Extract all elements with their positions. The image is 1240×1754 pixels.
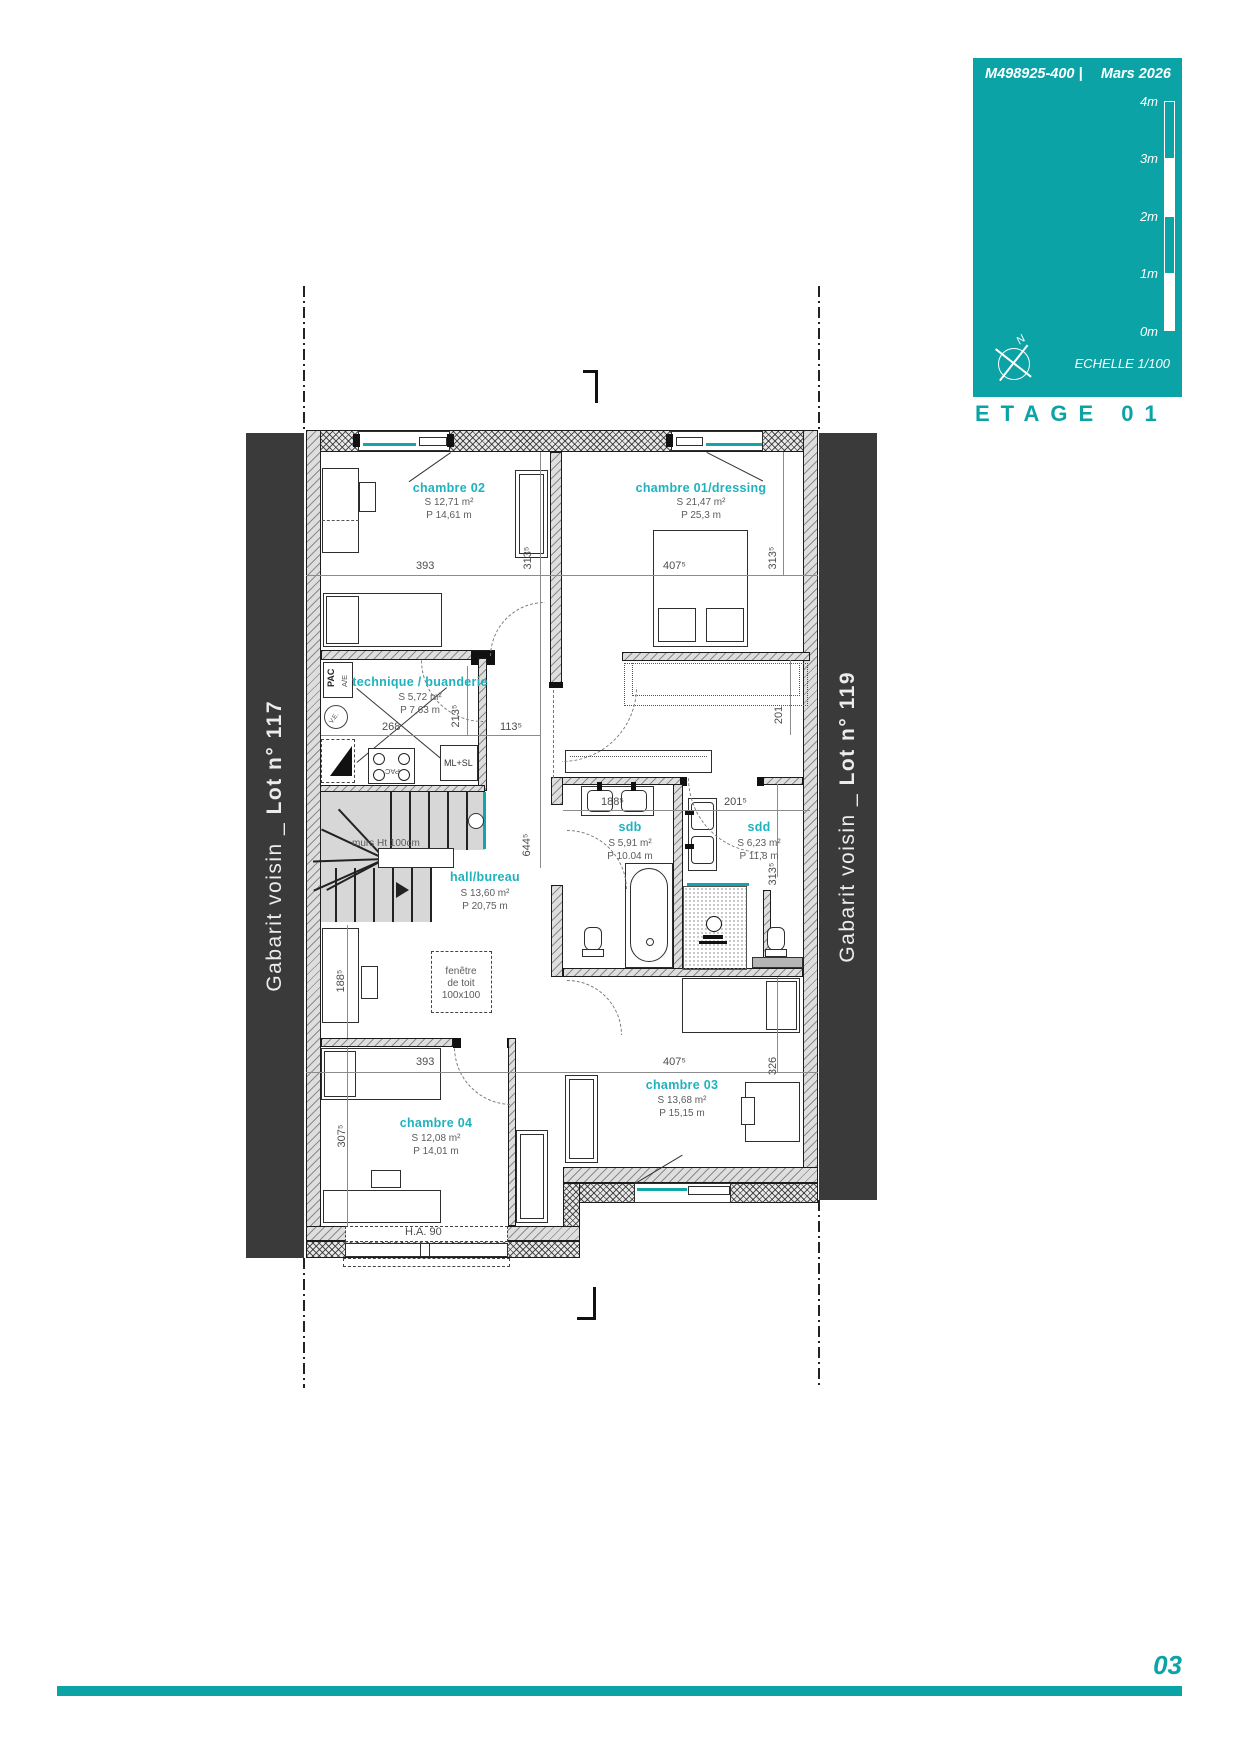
dimension-line xyxy=(306,575,818,576)
room-area-chambre03: S 13,68 m² xyxy=(602,1095,762,1106)
room-area-chambre02: S 12,71 m² xyxy=(369,497,529,508)
wall-exterior-left xyxy=(306,430,321,1258)
window-mullion xyxy=(420,1243,430,1257)
cabinet-symbol xyxy=(330,746,352,776)
appliance-foot xyxy=(373,769,385,781)
neighbor-strip-left: Gabarit voisin _ Lot n° 117 xyxy=(246,433,304,1258)
bathtub-drain xyxy=(646,938,654,946)
room-label-hall: hall/bureau xyxy=(390,870,580,884)
sdd-bench xyxy=(752,957,803,968)
side-table xyxy=(361,966,378,999)
washer-dryer-label: ML+SL xyxy=(444,758,473,768)
washer-dryer: ML+SL xyxy=(440,745,478,781)
pac-appliance: PAC xyxy=(368,748,415,784)
room-perimeter-chambre04: P 14,01 m xyxy=(356,1146,516,1157)
sheet-title: ETAGE 01 xyxy=(975,401,1168,427)
dim-268: 268 xyxy=(382,721,400,733)
room-label-chambre01: chambre 01/dressing xyxy=(606,481,796,495)
scale-tick-4m: 4m xyxy=(1128,94,1158,109)
roof-window-label: 100x100 xyxy=(431,990,491,1001)
wall-hall-sdb xyxy=(561,777,683,785)
door-arc-chambre04 xyxy=(454,1047,512,1105)
room-area-technique: S 5,72 m² xyxy=(340,692,500,703)
scale-tick-0m: 0m xyxy=(1128,324,1158,339)
toilet-base xyxy=(765,949,787,957)
door-arc-chambre01 xyxy=(562,687,637,762)
desk-chambre04 xyxy=(323,1190,441,1223)
shower-drain xyxy=(706,916,722,932)
scale-bar-segment xyxy=(1164,274,1175,332)
scale-label: ECHELLE 1/100 xyxy=(1050,356,1170,371)
scale-bar-segment xyxy=(1164,159,1175,217)
dim-313-sdd: 313⁵ xyxy=(767,863,779,886)
bathtub-inner xyxy=(630,868,668,962)
window-glazing xyxy=(363,443,416,446)
pillow xyxy=(658,608,696,642)
wall-exterior-right xyxy=(803,430,818,1183)
section-marker xyxy=(593,1287,596,1320)
window-pane xyxy=(419,437,447,446)
pillow xyxy=(766,981,797,1030)
ve-label: V.E. xyxy=(328,711,340,725)
room-area-sdd: S 6,23 m² xyxy=(679,838,839,849)
section-marker xyxy=(577,1317,596,1320)
dim-393-top: 393 xyxy=(416,560,434,572)
scale-tick-2m: 2m xyxy=(1128,209,1158,224)
room-label-chambre04: chambre 04 xyxy=(341,1116,531,1130)
window-jamb xyxy=(353,434,360,447)
window-leaf-open xyxy=(408,452,451,482)
dim-188-hall: 188⁵ xyxy=(335,970,347,993)
shower-fixture xyxy=(699,941,727,944)
neighbor-left-label: Gabarit voisin _ Lot n° 117 xyxy=(263,700,287,992)
shower-fixture xyxy=(703,935,723,939)
stair-wall-note: murs Ht 100cm xyxy=(352,838,420,849)
shower-glass xyxy=(687,883,749,886)
roof-window-label: fenêtre xyxy=(431,966,491,977)
wall-hall-sdd xyxy=(763,777,803,785)
scale-tick-3m: 3m xyxy=(1128,151,1158,166)
wall-stair-top xyxy=(320,785,485,792)
room-label-sdd: sdd xyxy=(664,820,854,834)
door-arc-chambre02 xyxy=(490,602,545,657)
wall-dressing xyxy=(622,652,810,661)
wardrobe-divider xyxy=(322,520,359,521)
project-date: Mars 2026 xyxy=(1101,66,1171,82)
dimension-line xyxy=(790,660,791,735)
room-label-chambre02: chambre 02 xyxy=(354,481,544,495)
appliance-foot xyxy=(398,753,410,765)
lot-boundary-line xyxy=(818,1200,820,1388)
page-number: 03 xyxy=(1140,1650,1182,1681)
dim-201-sdd: 201⁵ xyxy=(724,796,747,808)
tap xyxy=(631,782,636,791)
dim-ha90: H.A. 90 xyxy=(405,1226,442,1238)
pillow xyxy=(706,608,744,642)
toilet-sdb xyxy=(584,927,602,951)
wardrobe-chambre03b xyxy=(516,1130,548,1223)
toilet-sdd xyxy=(767,927,785,951)
appliance-foot xyxy=(373,753,385,765)
section-marker xyxy=(595,370,598,403)
lot-boundary-line xyxy=(303,1258,305,1388)
scale-tick-1m: 1m xyxy=(1128,266,1158,281)
floor-plan-page: M498925-400 | Mars 2026 4m 3m 2m 1m 0m N… xyxy=(0,0,1240,1754)
window-pane xyxy=(688,1186,730,1195)
room-perimeter-sdd: P 11,8 m xyxy=(679,851,839,862)
dim-201-dressing: 201 xyxy=(773,706,785,724)
dimension-line xyxy=(321,735,540,736)
neighbor-strip-right: Gabarit voisin _ Lot n° 119 xyxy=(819,433,877,1200)
wall-chambre02-right xyxy=(550,452,562,687)
pillow xyxy=(326,596,359,644)
appliance-label: PAC xyxy=(385,767,400,776)
window-leaf-open xyxy=(706,452,763,482)
stair-newel-post xyxy=(468,813,484,829)
dim-313-left: 313⁵ xyxy=(522,547,534,570)
tap xyxy=(597,782,602,791)
door-arc-chambre03 xyxy=(567,980,622,1035)
chair-chambre04 xyxy=(371,1170,401,1188)
window-jamb xyxy=(666,434,673,447)
window-sill-dashed xyxy=(343,1258,510,1267)
dim-644: 644⁵ xyxy=(521,834,533,857)
neighbor-right-label: Gabarit voisin _ Lot n° 119 xyxy=(836,671,860,963)
dim-407-top: 407⁵ xyxy=(663,560,686,572)
window-pane xyxy=(676,437,703,446)
room-area-chambre04: S 12,08 m² xyxy=(356,1133,516,1144)
room-area-hall: S 13,60 m² xyxy=(405,888,565,899)
room-perimeter-hall: P 20,75 m xyxy=(405,901,565,912)
stair-landing xyxy=(378,848,454,868)
wall-end-cap xyxy=(549,682,563,688)
dimension-line xyxy=(347,925,348,1038)
dim-326: 326 xyxy=(767,1057,779,1075)
window-jamb xyxy=(447,434,454,447)
scale-bar-segment xyxy=(1164,216,1175,274)
room-perimeter-chambre03: P 15,15 m xyxy=(602,1108,762,1119)
footer-bar xyxy=(57,1686,1182,1696)
basin xyxy=(621,790,647,812)
room-perimeter-chambre01: P 25,3 m xyxy=(621,510,781,521)
dimension-line xyxy=(783,452,784,575)
room-label-chambre03: chambre 03 xyxy=(587,1078,777,1092)
dimension-line xyxy=(563,810,810,811)
dim-313-right: 313⁵ xyxy=(767,547,779,570)
project-reference: M498925-400 | xyxy=(985,66,1083,82)
wall-technique-top xyxy=(321,650,495,660)
pillow xyxy=(324,1051,356,1097)
room-label-technique: technique / buanderie xyxy=(325,675,515,689)
toilet-base xyxy=(582,949,604,957)
window-glazing xyxy=(706,443,762,446)
wall-sdb-sdd xyxy=(673,784,683,977)
dim-407-bottom: 407⁵ xyxy=(663,1056,686,1068)
roof-window-label: de toit xyxy=(431,978,491,989)
dim-188-sdb: 188⁵ xyxy=(601,796,624,808)
lot-boundary-line xyxy=(818,286,820,433)
dimension-line xyxy=(540,452,541,575)
opening-dashed-line xyxy=(553,690,554,778)
dimension-line xyxy=(306,1072,818,1073)
window-glazing xyxy=(637,1188,687,1191)
room-perimeter-chambre02: P 14,61 m xyxy=(369,510,529,521)
room-perimeter-technique: P 7,63 m xyxy=(340,705,500,716)
wall-sdb-left xyxy=(551,777,563,805)
dressing-wardrobe-inner xyxy=(632,663,800,696)
room-area-chambre01: S 21,47 m² xyxy=(621,497,781,508)
dim-393-bottom: 393 xyxy=(416,1056,434,1068)
title-block: M498925-400 | Mars 2026 4m 3m 2m 1m 0m N… xyxy=(973,58,1182,397)
lot-boundary-line xyxy=(303,286,305,433)
wall-exterior-bottom-right xyxy=(563,1167,818,1183)
wall-chambre04-top xyxy=(321,1038,453,1047)
scale-bar-segment xyxy=(1164,101,1175,159)
dim-113: 113⁵ xyxy=(500,721,522,733)
